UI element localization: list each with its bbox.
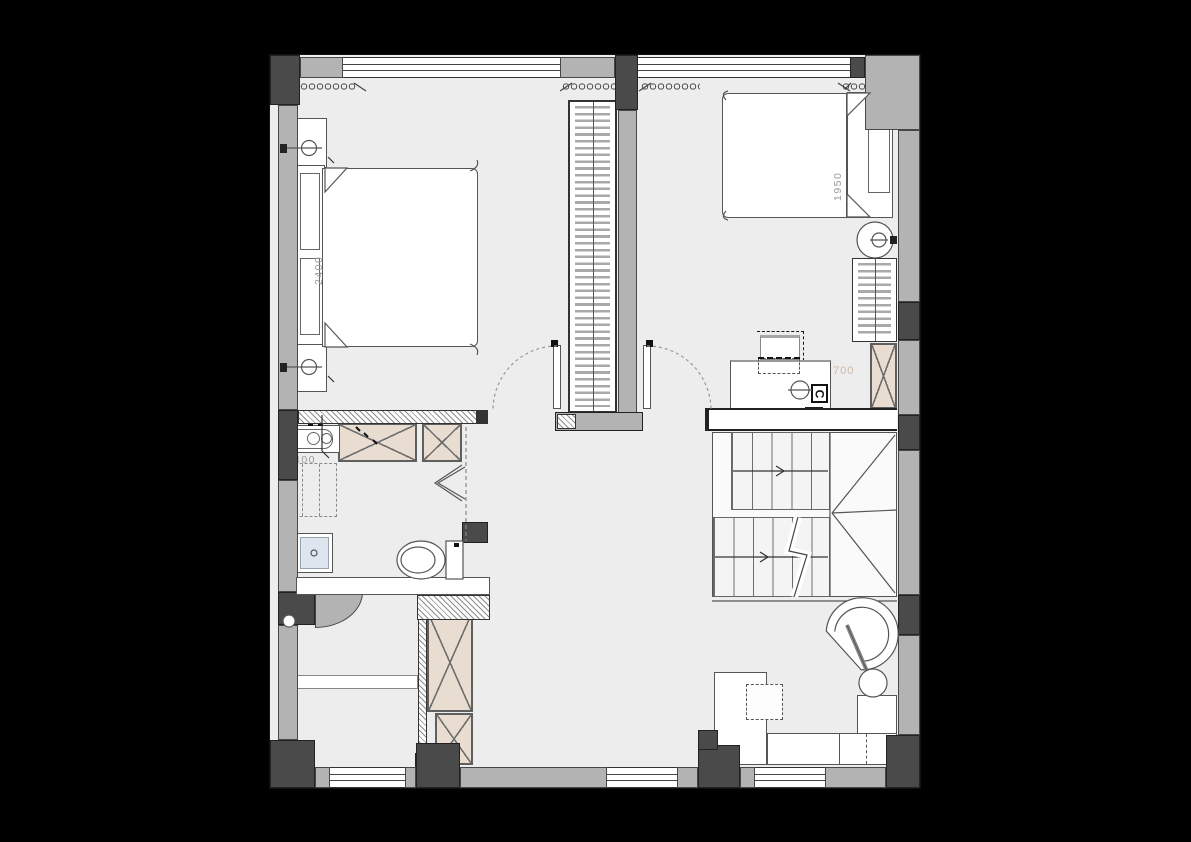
wardrobe-cabinet bbox=[870, 343, 897, 409]
wall bbox=[898, 635, 920, 735]
stair-flight-lower bbox=[713, 517, 830, 597]
chair-leg bbox=[847, 625, 873, 685]
door-jamb-wall bbox=[462, 522, 488, 543]
wardrobe-cabinet bbox=[338, 423, 417, 462]
wall-pier bbox=[615, 55, 638, 110]
window bbox=[607, 767, 677, 788]
cabinet-row bbox=[767, 733, 897, 765]
wall-pier bbox=[278, 410, 298, 480]
wall-hatch bbox=[417, 595, 490, 620]
wall-pier bbox=[740, 767, 755, 788]
radiator-grille bbox=[852, 258, 897, 342]
louvered-closet bbox=[568, 100, 617, 413]
cabinet-divider bbox=[866, 734, 867, 764]
curtain-icon bbox=[562, 82, 622, 91]
wall-pier bbox=[677, 767, 698, 788]
bed bbox=[322, 168, 478, 347]
curtain-icon bbox=[641, 82, 700, 91]
door-leaf bbox=[553, 345, 561, 409]
toilet bbox=[397, 541, 463, 579]
door-hinge-icon bbox=[551, 340, 558, 347]
wall-pier bbox=[898, 415, 920, 450]
stool bbox=[859, 669, 887, 697]
closet-side-wall bbox=[618, 110, 637, 413]
shelf-divider bbox=[302, 464, 303, 516]
shelf-divider bbox=[319, 464, 320, 516]
desk-depth-dimension: 700 bbox=[833, 365, 869, 377]
door-swing-arc bbox=[647, 346, 711, 410]
headboard-panel bbox=[868, 122, 890, 193]
wall bbox=[278, 480, 298, 592]
chair-outline bbox=[746, 684, 783, 720]
bedside-table bbox=[857, 222, 897, 258]
monitor-outline bbox=[758, 358, 800, 374]
wall-pier bbox=[898, 595, 920, 635]
wall-pier bbox=[315, 767, 330, 788]
wall bbox=[825, 767, 886, 788]
louver-divider bbox=[875, 259, 876, 341]
window bbox=[638, 57, 850, 78]
bathroom-wall-hatch bbox=[298, 410, 488, 424]
wall bbox=[460, 767, 607, 788]
curved-wall bbox=[315, 592, 363, 628]
wall-pier bbox=[278, 592, 315, 625]
wall-pier bbox=[698, 730, 718, 750]
louver-divider bbox=[593, 102, 594, 411]
shower-base bbox=[300, 537, 329, 569]
wall-pier bbox=[560, 57, 615, 78]
bed-width-dimension: 2400 bbox=[314, 227, 328, 285]
wall-pier bbox=[698, 745, 740, 788]
chair-back-rest bbox=[853, 598, 869, 605]
wall-pier bbox=[416, 743, 460, 788]
window bbox=[343, 57, 560, 78]
cabinet-divider bbox=[839, 734, 840, 764]
door-hinge-icon bbox=[646, 340, 653, 347]
wall-cap bbox=[476, 410, 488, 424]
wall-corner bbox=[865, 55, 920, 130]
wall bbox=[898, 130, 920, 302]
wall-pier bbox=[405, 767, 416, 788]
door-swing-arc bbox=[493, 346, 557, 410]
bed bbox=[722, 93, 847, 218]
floor-plan-canvas: 2400 1950 700 C 400 bbox=[0, 0, 1191, 842]
stair-flight-upper bbox=[731, 432, 830, 510]
column-marker: C bbox=[811, 384, 828, 403]
wall-corner bbox=[886, 735, 920, 788]
column-marker-label: C bbox=[812, 389, 826, 398]
sink-bowl-icon bbox=[307, 432, 320, 445]
wall-hatch bbox=[557, 414, 576, 429]
wall-pier bbox=[300, 57, 343, 78]
wardrobe-cabinet bbox=[422, 423, 462, 462]
wall bbox=[898, 450, 920, 595]
wardrobe-cabinet bbox=[427, 613, 473, 712]
wall bbox=[278, 625, 298, 740]
wall-corner bbox=[270, 740, 315, 788]
window bbox=[755, 767, 825, 788]
chair-leg-line bbox=[847, 625, 873, 685]
bathroom-south-wall bbox=[296, 577, 490, 595]
curtain-icon bbox=[292, 82, 356, 91]
stair-enclosure-wall bbox=[705, 408, 897, 431]
monitor-base bbox=[758, 357, 800, 360]
floor-plan: 2400 1950 700 C 400 bbox=[270, 55, 920, 788]
wall bbox=[898, 340, 920, 415]
sink-bowl-icon bbox=[321, 433, 332, 444]
door-leaf bbox=[643, 345, 651, 409]
shelf-band bbox=[284, 675, 418, 689]
bed-width-dimension: 1950 bbox=[833, 143, 847, 201]
bifold-door bbox=[435, 465, 462, 501]
bifold-door bbox=[438, 467, 465, 499]
window bbox=[330, 767, 405, 788]
shower-tray bbox=[296, 533, 333, 573]
wall bbox=[278, 105, 298, 410]
wall-corner bbox=[270, 55, 300, 105]
wall-pier bbox=[898, 302, 920, 340]
wall-pier bbox=[850, 57, 865, 78]
side-table bbox=[857, 695, 897, 735]
